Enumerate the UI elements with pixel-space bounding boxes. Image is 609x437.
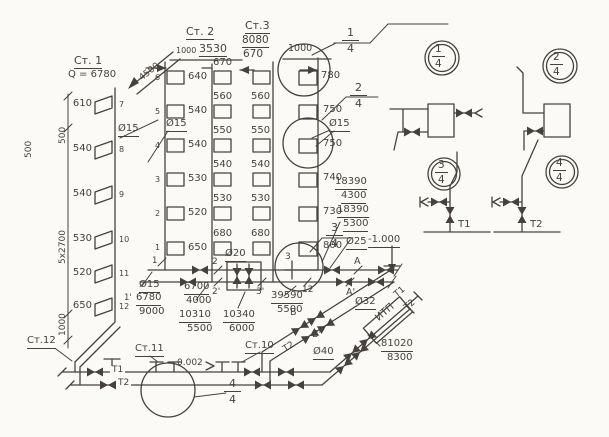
st1-radiators: [95, 96, 112, 316]
pipe-label-t1: Т1: [110, 366, 125, 375]
callout-denominator: 4: [347, 42, 354, 55]
detail-1-callout: 1 4: [432, 43, 445, 70]
node-label: 3': [256, 288, 264, 297]
node-label: 12: [119, 303, 129, 311]
slope-value: 0.002: [177, 359, 203, 368]
supply-return-mains: [140, 246, 402, 290]
callout-circle-4: [141, 363, 195, 417]
node-label: 1': [124, 294, 132, 303]
flow-value: 18390: [335, 177, 367, 190]
node-label: 10: [119, 236, 129, 244]
dim-label: 8080: [242, 35, 269, 48]
node-label: 11: [119, 270, 129, 278]
radiator-value: 780: [321, 71, 340, 82]
node-label: 6: [155, 74, 160, 82]
radiator-value: 670: [213, 58, 232, 69]
radiator-value: 520: [188, 208, 207, 219]
flow-value: 18390: [337, 205, 369, 218]
radiator-value: 530: [188, 174, 207, 185]
node-label: 1: [152, 257, 157, 266]
detail-2-drawing: [517, 49, 577, 150]
flow-value: 8300: [387, 353, 412, 364]
node-label: 12: [302, 286, 313, 295]
callout-numerator: 3: [326, 221, 343, 236]
flow-value: 6000: [229, 324, 254, 335]
node-label: B': [312, 330, 321, 340]
node-label: 7: [119, 101, 124, 109]
detail-numerator: 4: [553, 157, 566, 171]
callout-denominator: 4: [331, 237, 338, 250]
node-label: 3: [285, 253, 291, 262]
callout-3-4: 3 4: [326, 221, 343, 250]
radiator-value: 520: [58, 268, 92, 279]
callout-denominator: 4: [229, 393, 236, 406]
flow-value: 81020: [381, 339, 413, 352]
pipe-diameter: Ø25: [346, 237, 367, 250]
detail-4-callout: 4 4: [553, 157, 566, 184]
node-label: 9: [119, 191, 124, 199]
radiator-value: 560: [251, 92, 270, 103]
dim-label: 3530: [199, 43, 227, 57]
riser-st3-label: Ст.3: [245, 20, 270, 34]
pipe-diameter: Ø15: [139, 280, 160, 293]
riser-st11-label: Ст.11: [135, 344, 164, 357]
callout-numerator: 1: [342, 26, 359, 41]
radiator-value: 540: [188, 106, 207, 117]
flow-value: 39590: [271, 291, 303, 304]
flow-value: 6780: [136, 293, 161, 306]
radiator-value: 750: [323, 105, 342, 116]
pipe-diameter: Ø32: [355, 297, 376, 310]
node-label: A': [346, 288, 355, 298]
node-label: 2: [155, 210, 160, 218]
node-label: 4: [155, 142, 160, 150]
flow-value: 5500: [277, 305, 302, 316]
dim-label: 1000: [288, 44, 312, 54]
heating-axonometric-scheme: Ст. 1 Q = 6780 4500 Ø15 610 540 540 530 …: [0, 0, 609, 437]
flow-value: 5300: [343, 219, 368, 232]
radiator-value: 550: [213, 126, 232, 137]
radiator-value: 560: [213, 92, 232, 103]
callout-1-4: 1 4: [342, 26, 359, 55]
callout-numerator: 2: [350, 81, 367, 96]
node-label: 2: [212, 258, 218, 267]
st2-pipe-diameter: Ø15: [166, 119, 187, 132]
dim-label: 500: [59, 127, 68, 144]
elevation-value: -1.000: [368, 235, 400, 248]
flow-value: 10340: [223, 310, 255, 323]
radiator-value: 650: [188, 243, 207, 254]
callout-denominator: 4: [355, 97, 362, 110]
radiator-value: 640: [188, 72, 207, 83]
detail-numerator: 3: [435, 159, 448, 173]
detail-denominator: 4: [553, 66, 560, 78]
pipe-diameter: Ø20: [225, 249, 246, 262]
node-label: 3: [155, 176, 160, 184]
dim-label: 1000: [59, 313, 68, 336]
radiator-value: 550: [251, 126, 270, 137]
flow-value: 6700: [184, 282, 209, 295]
radiator-value: 680: [213, 229, 232, 240]
node-label: 8: [119, 146, 124, 154]
radiator-value: 540: [188, 140, 207, 151]
pipe-diameter: Ø40: [313, 347, 334, 360]
detail-numerator: 2: [550, 51, 563, 65]
radiator-value: 540: [58, 189, 92, 200]
riser-st1-flow: Q = 6780: [68, 70, 116, 81]
radiator-value: 530: [213, 194, 232, 205]
flow-value: 10310: [179, 310, 211, 323]
detail-2-callout: 2 4: [550, 51, 563, 78]
callout-2-4: 2 4: [350, 81, 367, 110]
dim-label: 5x2700: [59, 230, 68, 264]
detail-3-callout: 3 4: [435, 159, 448, 186]
node-label: 1: [155, 244, 160, 252]
pipe-label-t2: Т2: [116, 379, 131, 388]
riser-st12-label: Ст.12: [27, 336, 56, 349]
drain-unit-box: [227, 262, 261, 290]
dim-label: 1000: [176, 47, 196, 55]
radiator-value: 650: [58, 301, 92, 312]
radiator-value: 610: [58, 99, 92, 110]
slope-direction-arrow: [206, 362, 214, 370]
elevation-mark: [384, 246, 400, 266]
detail-denominator: 4: [438, 174, 445, 186]
radiator-value: 530: [251, 194, 270, 205]
node-label: 5: [155, 108, 160, 116]
detail-3-drawing: [420, 152, 490, 232]
flow-value: 5500: [187, 324, 212, 335]
radiator-value: 750: [323, 139, 342, 150]
riser-st2-label: Ст. 2: [186, 26, 214, 40]
riser-st10-label: Ст.10: [245, 341, 274, 354]
flow-value: 4300: [341, 191, 366, 204]
detail-3-pipe-label: Т1: [456, 220, 472, 231]
radiator-value: 670: [243, 49, 263, 60]
radiator-value: 540: [251, 160, 270, 171]
detail-4-pipe-label: Т2: [528, 220, 544, 231]
st1-pipe-diameter: Ø15: [118, 124, 139, 137]
st3-pipe-diameter: Ø15: [329, 119, 350, 132]
callout-numerator: 4: [224, 377, 241, 392]
radiator-value: 680: [251, 229, 270, 240]
detail-numerator: 1: [432, 43, 445, 57]
radiator-value: 540: [58, 144, 92, 155]
riser-st1-label: Ст. 1: [74, 55, 102, 69]
flow-value: 9000: [139, 307, 164, 318]
node-label: 2': [212, 288, 220, 297]
detail-denominator: 4: [435, 58, 442, 70]
callout-4-4: 4 4: [224, 377, 241, 406]
dim-label: 500: [25, 141, 34, 158]
detail-denominator: 4: [556, 172, 563, 184]
flow-value: 4000: [186, 296, 211, 307]
radiator-value: 540: [213, 160, 232, 171]
node-label: A: [354, 257, 361, 267]
